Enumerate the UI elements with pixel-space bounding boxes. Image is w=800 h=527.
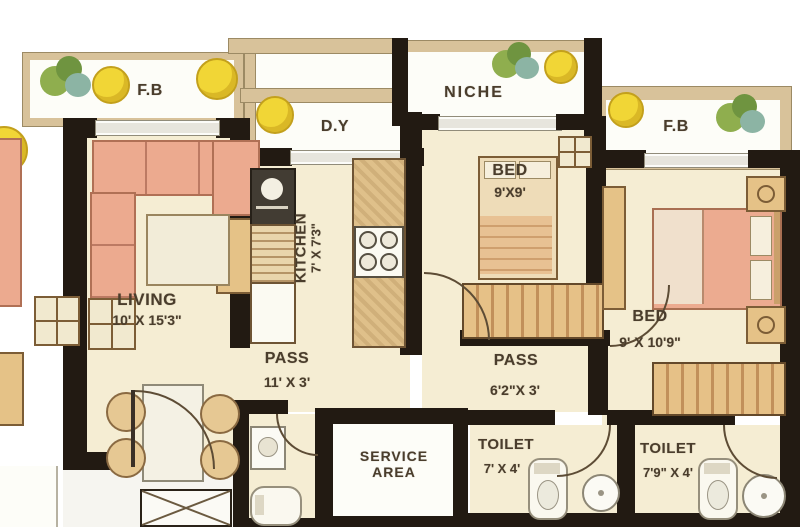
- wall: [607, 410, 617, 425]
- pillow: [750, 260, 772, 300]
- window-sill: [438, 116, 562, 131]
- wall: [588, 345, 608, 415]
- wall: [748, 150, 782, 168]
- adjacent-unit-sofa: [0, 138, 22, 307]
- sofa: [90, 192, 136, 302]
- kitchen-counter: [250, 224, 296, 284]
- toilet-icon: [250, 486, 302, 526]
- side-table: [746, 306, 786, 344]
- adjacent-lobby: [0, 466, 58, 527]
- wall: [216, 118, 250, 138]
- wall: [233, 400, 288, 414]
- bed: [652, 208, 782, 310]
- toilet-bowl: [707, 480, 729, 510]
- dy-upper-band: [228, 38, 402, 54]
- room-label-kitchen-text: KITCHEN: [293, 196, 310, 301]
- room-dims-pass-bed: 6'2"X 3': [472, 382, 558, 398]
- planter-pot-icon: [256, 96, 294, 134]
- window-sill: [644, 153, 752, 168]
- burner-icon: [359, 253, 377, 271]
- blanket: [480, 216, 552, 274]
- kitchen-cabinet: [250, 282, 296, 344]
- room-label-fb-right: F.B: [636, 118, 716, 136]
- burner-icon: [380, 253, 398, 271]
- adjacent-side-table: [34, 296, 80, 346]
- wardrobe: [652, 362, 786, 416]
- room-label-toilet-attached: TOILET: [632, 440, 704, 457]
- toilet-tank: [255, 495, 264, 515]
- kitchen-sink-unit: [250, 168, 296, 226]
- room-label-dy: D.Y: [295, 118, 375, 136]
- plant-icon: [492, 42, 542, 86]
- room-label-niche: NICHE: [434, 84, 514, 102]
- dining-chair: [200, 394, 240, 434]
- toilet-tank: [704, 463, 730, 474]
- room-label-bed-large: BED: [615, 308, 685, 326]
- plant-icon: [716, 94, 768, 140]
- lamp-icon: [757, 316, 775, 334]
- planter-pot-icon: [544, 50, 578, 84]
- lamp-icon: [757, 185, 775, 203]
- wall: [63, 118, 97, 138]
- burner-icon: [380, 231, 398, 249]
- adjacent-unit-cabinet: [0, 352, 24, 426]
- planter-pot-icon: [196, 58, 238, 100]
- basin-bowl: [258, 437, 278, 457]
- room-dims-bed-small: 9'X9': [475, 184, 545, 200]
- room-label-bed-small: BED: [480, 162, 540, 180]
- toilet-bowl: [537, 480, 559, 510]
- wall: [455, 513, 800, 527]
- stove-icon: [354, 226, 404, 278]
- floorplan-image: F.B D.Y NICHE F.B LIVING 10' X 15'3" KIT…: [0, 0, 800, 527]
- room-label-kitchen: KITCHEN 7' X 7'3": [293, 196, 339, 301]
- room-label-pass-bed: PASS: [480, 352, 552, 370]
- sink-icon: [261, 178, 283, 200]
- room-dims-pass-main: 11' X 3': [250, 374, 324, 390]
- room-label-service: SERVICE AREA: [352, 448, 436, 480]
- room-dims-toilet-attached: 7'9" X 4': [630, 466, 706, 481]
- coffee-table: [146, 214, 230, 286]
- washbasin-icon: [582, 474, 620, 512]
- headboard: [774, 210, 780, 304]
- ac-unit: [558, 136, 592, 168]
- plant-leaf: [65, 73, 91, 97]
- washbasin-icon: [742, 474, 786, 518]
- room-label-fb-left: F.B: [110, 82, 190, 100]
- window-sill: [95, 120, 220, 136]
- staircase: [140, 489, 232, 527]
- wall: [405, 114, 440, 130]
- side-table: [746, 176, 786, 212]
- room-dims-toilet-common: 7' X 4': [472, 462, 532, 477]
- plant-leaf: [740, 110, 765, 133]
- plant-icon: [40, 56, 92, 104]
- wall: [455, 410, 555, 425]
- room-label-pass-main: PASS: [252, 350, 322, 368]
- burner-icon: [359, 231, 377, 249]
- room-dims-bed-large: 9' X 10'9": [608, 334, 692, 350]
- plant-leaf: [515, 57, 539, 79]
- pillow: [750, 216, 772, 256]
- wall: [63, 118, 87, 470]
- room-dims-kitchen: 7' X 7'3": [310, 196, 325, 301]
- wall: [392, 38, 408, 126]
- room-dims-living: 10' X 15'3": [87, 312, 207, 328]
- faucet-icon: [256, 206, 288, 209]
- room-label-living: LIVING: [97, 290, 197, 310]
- room-label-toilet-common: TOILET: [470, 436, 542, 453]
